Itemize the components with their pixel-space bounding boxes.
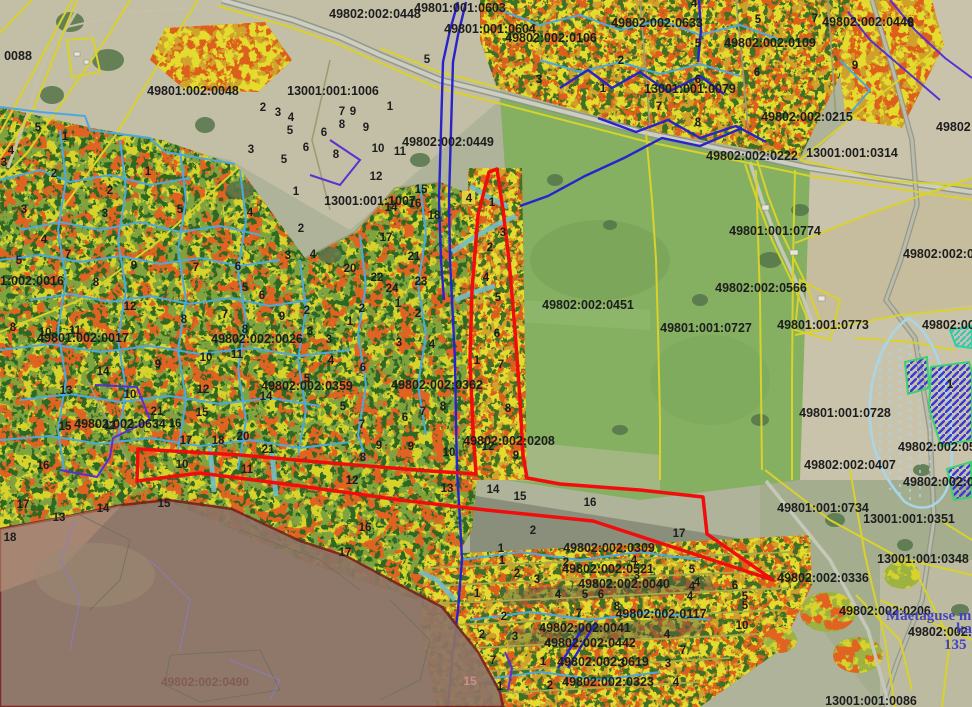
- unit-number: 18: [212, 435, 225, 447]
- unit-number: 3: [512, 631, 518, 643]
- unit-number: 4: [41, 234, 48, 246]
- unit-number: 9: [363, 122, 369, 134]
- unit-number: 10: [124, 389, 137, 401]
- unit-number: 3: [21, 204, 27, 216]
- parcel-code-label: 49802:002:0359: [261, 379, 353, 393]
- unit-number: 7: [65, 249, 71, 261]
- unit-number: 17: [180, 435, 193, 447]
- parcel-code-label: 49801:001:0727: [660, 321, 752, 335]
- parcel-code-label: 13001:001:0086: [825, 694, 917, 707]
- unit-number: 8: [695, 117, 702, 129]
- unit-number: 4: [8, 145, 15, 157]
- unit-number: 7: [812, 13, 818, 25]
- parcel-code-label: 49801:002:0017: [37, 331, 129, 345]
- unit-number: 9: [852, 60, 858, 72]
- unit-number: 8: [440, 401, 447, 413]
- unit-number: 1: [387, 101, 394, 113]
- parcel-code-label: 49801:001:0603: [414, 1, 506, 15]
- unit-number: 14: [487, 484, 500, 496]
- unit-number: 2: [547, 680, 553, 692]
- parcel-code-label: 13001:001:1007: [324, 194, 416, 208]
- unit-number: 7: [222, 309, 228, 321]
- unit-number: 3: [307, 326, 313, 338]
- unit-number: 4: [673, 677, 680, 689]
- parcel-code-label: 49801:001:0774: [729, 224, 821, 238]
- parcel-code-label: 49802:002:0633: [611, 16, 703, 30]
- unit-number: 5: [242, 282, 249, 294]
- unit-number: 24: [386, 283, 399, 295]
- parcel-code-label: 49802:002:0041: [539, 621, 631, 635]
- parcel-code-label: 49802:002:0323: [562, 675, 654, 689]
- unit-number: 3: [285, 250, 291, 262]
- parcel-code-label: 49802:002:0407: [804, 458, 896, 472]
- unit-number: 3: [396, 337, 402, 349]
- unit-number: 2: [415, 308, 421, 320]
- unit-number: 2: [359, 303, 365, 315]
- unit-number: 7: [490, 655, 496, 667]
- unit-number: 4: [691, 0, 698, 10]
- unit-number: 1: [474, 355, 481, 367]
- unit-number: 16: [359, 522, 372, 534]
- parcel-code-label: 49802:002:0: [922, 318, 972, 332]
- unit-number: 15: [196, 407, 209, 419]
- unit-number: 4: [247, 207, 254, 219]
- parcel-code-label: 49802:002:0566: [715, 281, 807, 295]
- unit-number: 15: [158, 498, 171, 510]
- parcel-code-label: 49802:002:0336: [777, 571, 869, 585]
- unit-number: 1: [540, 656, 547, 668]
- unit-number: 1: [145, 166, 152, 178]
- parcel-code-label: 13001:001:0079: [644, 82, 736, 96]
- unit-number: 1: [600, 83, 607, 95]
- unit-number: 2: [618, 55, 624, 67]
- unit-number: 1: [395, 298, 402, 310]
- unit-number: 9: [376, 440, 382, 452]
- unit-number: 8: [93, 277, 100, 289]
- unit-number: 13: [60, 385, 73, 397]
- unit-number: 4: [288, 112, 295, 124]
- unit-number: 17: [673, 528, 686, 540]
- unit-number: 5: [495, 292, 502, 304]
- unit-number: 13: [441, 483, 454, 495]
- parcel-code-label: 49802:002:0446: [822, 15, 914, 29]
- unit-number: 7: [420, 406, 426, 418]
- parcel-code-label: 49801:001:0734: [777, 501, 869, 515]
- unit-number: 1: [947, 379, 954, 391]
- parcel-code-label: 49802:002:0449: [402, 135, 494, 149]
- unit-number: 4: [664, 629, 671, 641]
- unit-number: 3: [665, 658, 671, 670]
- unit-number: 3: [500, 227, 506, 239]
- unit-number: 8: [360, 452, 367, 464]
- unit-number: 5: [742, 600, 749, 612]
- unit-number: 12: [370, 171, 383, 183]
- unit-number: 10: [372, 143, 385, 155]
- unit-number: 17: [380, 232, 393, 244]
- unit-number: 1: [293, 186, 300, 198]
- unit-number: 5: [287, 125, 294, 137]
- unit-number: 10: [176, 459, 189, 471]
- parcel-code-label: 49802:002:0634: [74, 417, 166, 431]
- overlay-unit-number: 15: [463, 674, 477, 688]
- parcel-code-label: 49801:002:0048: [147, 84, 239, 98]
- parcel-code-label: 49802:002:0570: [898, 440, 972, 454]
- unit-number: 6: [235, 261, 241, 273]
- unit-number: 16: [169, 418, 182, 430]
- unit-number: 3: [326, 334, 332, 346]
- parcel-code-label: 0088: [4, 49, 32, 63]
- unit-number: 7: [339, 106, 345, 118]
- parcel-code-label: 49802:002:0442: [544, 636, 636, 650]
- unit-number: 4: [310, 249, 317, 261]
- unit-number: 21: [262, 444, 275, 456]
- unit-number: 18: [428, 210, 441, 222]
- unit-number: 2: [479, 629, 485, 641]
- unit-number: 9: [513, 450, 519, 462]
- parcel-code-label: 49802:002:0309: [563, 541, 655, 555]
- unit-number: 3: [275, 107, 281, 119]
- unit-number: 3: [102, 208, 108, 220]
- unit-number: 8: [10, 322, 17, 334]
- unit-number: 7: [576, 608, 582, 620]
- unit-number: 20: [344, 263, 357, 275]
- unit-number: 14: [97, 503, 110, 515]
- unit-number: 7: [680, 645, 686, 657]
- unit-number: 2: [487, 242, 493, 254]
- unit-number: 18: [4, 532, 17, 544]
- unit-number: 9: [408, 441, 414, 453]
- unit-number: 3: [536, 74, 542, 86]
- unit-number: 2: [51, 168, 57, 180]
- unit-number: 6: [754, 67, 760, 79]
- unit-number: 6: [494, 328, 500, 340]
- unit-number: 1: [474, 588, 481, 600]
- unit-number: 5: [755, 14, 762, 26]
- unit-number: 4: [328, 355, 335, 367]
- unit-number: 8: [333, 149, 340, 161]
- unit-number: 4: [429, 339, 436, 351]
- parcel-code-label: 49802:002:0362: [391, 378, 483, 392]
- unit-number: 14: [97, 366, 110, 378]
- station-marker-number: 4: [466, 193, 473, 205]
- unit-number: 15: [415, 184, 428, 196]
- unit-number: 9: [131, 260, 137, 272]
- unit-number: 10: [200, 352, 213, 364]
- unit-number: 10: [443, 447, 456, 459]
- unit-number: 23: [415, 276, 428, 288]
- unit-number: 1: [347, 316, 354, 328]
- unit-number: 11: [241, 464, 254, 476]
- parcel-code-label: 49802:002:0222: [903, 475, 972, 489]
- unit-number: 3: [1, 157, 7, 169]
- unit-number: 1: [498, 543, 505, 555]
- unit-number: 2: [530, 525, 536, 537]
- unit-number: 5: [340, 401, 347, 413]
- unit-number: 6: [402, 412, 408, 424]
- unit-number: 4: [687, 591, 694, 603]
- unit-number: 6: [259, 290, 265, 302]
- unit-number: 7: [359, 419, 365, 431]
- overlay-parcel-label: 49802:002:0490: [161, 675, 249, 689]
- unit-number: 2: [260, 102, 266, 114]
- unit-number: 9: [279, 311, 285, 323]
- parcel-code-label: 49802:002:0106: [505, 31, 597, 45]
- unit-number: 6: [360, 362, 366, 374]
- unit-number: 7: [656, 101, 662, 113]
- place-name-label: ka: [956, 621, 972, 637]
- unit-number: 3: [534, 574, 540, 586]
- parcel-code-label: 1:002:0016: [0, 274, 64, 288]
- unit-number: 5: [177, 204, 184, 216]
- unit-number: 17: [339, 547, 352, 559]
- unit-number: 12: [346, 475, 359, 487]
- map-canvas[interactable]: 5143223351412234535668879910111211516141…: [0, 0, 972, 707]
- unit-number: 12: [197, 384, 210, 396]
- unit-number: 2: [304, 305, 310, 317]
- parcel-code-label: 49802:002:0215: [761, 110, 853, 124]
- unit-number: 20: [237, 431, 250, 443]
- unit-number: 4: [694, 577, 701, 589]
- parcel-code-label: 49801:001:0728: [799, 406, 891, 420]
- unit-number: 7: [498, 359, 504, 371]
- unit-number: 15: [514, 491, 527, 503]
- unit-number: 1: [489, 197, 496, 209]
- parcel-code-label: 49802:002:0117: [615, 607, 706, 621]
- unit-number: 6: [303, 142, 309, 154]
- place-name-label: 135: [944, 637, 967, 653]
- parcel-code-label: 49802:0: [936, 120, 972, 134]
- unit-number: 13: [53, 512, 66, 524]
- unit-number: 12: [124, 301, 137, 313]
- unit-number: 8: [181, 314, 188, 326]
- unit-number: 8: [339, 119, 346, 131]
- unit-number: 2: [298, 223, 304, 235]
- parcel-code-label: 49802:002:0109: [724, 36, 816, 50]
- parcel-code-label: 49802:002:0208: [463, 434, 555, 448]
- unit-number: 5: [16, 255, 23, 267]
- unit-number: 9: [155, 359, 161, 371]
- parcel-code-label: 49802:002:0222: [706, 149, 798, 163]
- unit-number: 9: [350, 106, 356, 118]
- parcel-code-label: 13001:001:0351: [863, 512, 955, 526]
- unit-number: 16: [584, 497, 597, 509]
- unit-number: 6: [732, 580, 738, 592]
- unit-number: 6: [321, 127, 327, 139]
- parcel-code-label: 49802:002:0619: [557, 655, 649, 669]
- parcel-code-label: 13001:001:0314: [806, 146, 898, 160]
- unit-number: 5: [35, 122, 42, 134]
- parcel-code-label: 13001:001:0348: [877, 552, 969, 566]
- unit-number: 1: [499, 555, 506, 567]
- unit-number: 16: [37, 460, 50, 472]
- unit-number: 4: [483, 272, 490, 284]
- parcel-code-label: 49802:002:0521: [562, 562, 654, 576]
- unit-number: 5: [424, 54, 431, 66]
- parcel-code-label: 49802:002:0374: [903, 247, 972, 261]
- unit-number: 2: [501, 611, 507, 623]
- unit-number: 4: [555, 589, 562, 601]
- unit-number: 2: [107, 185, 113, 197]
- parcel-code-label: 49801:001:0773: [777, 318, 869, 332]
- parcel-code-label: 49802:002:0040: [578, 577, 670, 591]
- unit-number: 7: [193, 262, 199, 274]
- unit-number: 22: [371, 272, 384, 284]
- unit-number: 5: [689, 564, 696, 576]
- unit-number: 1: [62, 131, 69, 143]
- parcel-code-label: 49802:002:0448: [329, 7, 421, 21]
- unit-number: 17: [17, 499, 30, 511]
- unit-number: 2: [514, 568, 520, 580]
- parcel-code-label: 13001:001:1006: [287, 84, 379, 98]
- unit-number: 21: [408, 251, 421, 263]
- unit-number: 15: [59, 421, 72, 433]
- unit-number: 3: [248, 144, 254, 156]
- unit-number: 5: [281, 154, 288, 166]
- map-viewport[interactable]: 5143223351412234535668879910111211516141…: [0, 0, 972, 707]
- parcel-code-label: 49802:002:0026: [211, 332, 303, 346]
- parcel-code-label: 49802:002:0451: [542, 298, 634, 312]
- unit-number: 11: [231, 349, 244, 361]
- unit-number: 8: [505, 403, 512, 415]
- unit-number: 5: [695, 38, 702, 50]
- unit-number: 10: [736, 620, 749, 632]
- unit-number: 1: [497, 681, 504, 693]
